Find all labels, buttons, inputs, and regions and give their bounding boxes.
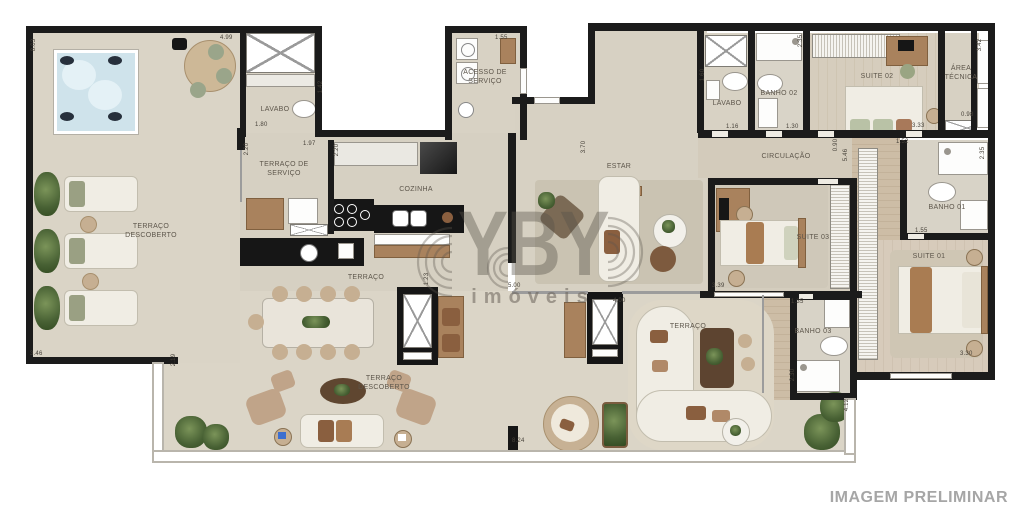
glass-divider bbox=[240, 150, 242, 202]
grill-shaft bbox=[403, 294, 432, 348]
wall bbox=[748, 31, 755, 133]
shaft-right bbox=[705, 35, 747, 67]
window bbox=[534, 97, 560, 104]
balcony-door bbox=[890, 373, 952, 379]
stool bbox=[738, 334, 752, 348]
toilet-icon bbox=[722, 72, 748, 91]
laptop-icon bbox=[898, 40, 914, 51]
bed-pillow bbox=[784, 226, 798, 260]
room-label-banho03: BANHO 03 bbox=[788, 327, 838, 336]
wall-tv-icon bbox=[172, 38, 187, 50]
dim-label: 4.99 bbox=[220, 35, 232, 41]
chair-icon bbox=[216, 68, 232, 84]
wall bbox=[588, 23, 595, 104]
fridge-tower bbox=[420, 142, 457, 174]
service-shelf bbox=[500, 38, 516, 64]
round-sink-icon bbox=[300, 244, 318, 262]
tablet-icon bbox=[278, 432, 286, 439]
dim-label: 2.35 bbox=[980, 147, 986, 159]
shower-head-icon bbox=[944, 148, 951, 155]
chair-icon bbox=[296, 344, 312, 360]
toilet-icon bbox=[928, 182, 956, 202]
burner-icon bbox=[360, 210, 370, 220]
lounger-pillow bbox=[69, 238, 85, 264]
wall bbox=[240, 33, 246, 137]
dim-label: 1.16 bbox=[726, 124, 738, 130]
door-opening bbox=[908, 234, 924, 239]
chair-icon bbox=[272, 344, 288, 360]
room-label-suite03: SUITE 03 bbox=[786, 233, 840, 242]
disclaimer-text: IMAGEM PRELIMINAR bbox=[830, 489, 1008, 507]
burner-icon bbox=[347, 217, 357, 227]
window bbox=[714, 292, 784, 297]
dim-label: 3.30 bbox=[960, 351, 972, 357]
plant bbox=[706, 348, 723, 365]
dim-label: 0.90 bbox=[833, 139, 839, 151]
dim-label: 5.46 bbox=[843, 149, 849, 161]
fireplace-cabinet bbox=[564, 302, 586, 358]
fireplace-slot bbox=[592, 349, 618, 357]
plant bbox=[730, 425, 741, 436]
wall bbox=[512, 97, 534, 104]
nightstand bbox=[966, 249, 983, 266]
room-label-cozinha: COZINHA bbox=[390, 185, 442, 194]
dim-label: 8.03 bbox=[31, 39, 37, 51]
plant bbox=[662, 220, 675, 233]
paper-icon bbox=[398, 434, 406, 441]
dim-label: 1.55 bbox=[915, 228, 927, 234]
bed-pillow bbox=[962, 272, 982, 328]
chair-icon bbox=[190, 82, 206, 98]
sofa-pillow bbox=[336, 420, 352, 442]
dim-label: 3.39 bbox=[712, 283, 724, 289]
service-sink bbox=[338, 243, 354, 259]
wall bbox=[988, 23, 995, 380]
dim-label: 3.70 bbox=[581, 141, 587, 153]
plant bbox=[34, 286, 60, 330]
dim-label: 1.30 bbox=[786, 124, 798, 130]
burner-icon bbox=[347, 204, 357, 214]
dim-label: 1.42 bbox=[318, 81, 324, 93]
headboard bbox=[981, 266, 988, 334]
watermark-subtitle: imóveis bbox=[438, 286, 628, 309]
terrace-parapet bbox=[152, 450, 856, 463]
wall bbox=[26, 26, 33, 364]
shaft-service-small bbox=[290, 224, 328, 236]
dim-label: 0.98 bbox=[961, 112, 973, 118]
plant bbox=[203, 424, 229, 450]
shower-head-icon bbox=[800, 364, 807, 371]
monitor-icon bbox=[719, 198, 729, 220]
door-opening bbox=[712, 131, 728, 137]
wall bbox=[520, 26, 527, 68]
room-label-estar: ESTAR bbox=[598, 162, 640, 171]
lounger-pillow bbox=[69, 295, 85, 321]
chair-icon bbox=[320, 344, 336, 360]
room-label-banho02: BANHO 02 bbox=[754, 89, 804, 98]
chair-icon bbox=[272, 286, 288, 302]
island-decor bbox=[442, 212, 453, 223]
chair-icon bbox=[208, 44, 224, 60]
room-label-terraco-lounge: TERRAÇO bbox=[658, 322, 718, 331]
toilet-icon bbox=[820, 336, 848, 356]
watermark-brand: YBY bbox=[455, 198, 611, 290]
glass-divider bbox=[762, 295, 764, 393]
room-label-terraco-desc-inf: TERRAÇO DESCOBERTO bbox=[342, 374, 426, 392]
island-lower-top bbox=[374, 234, 450, 245]
hot-tub-jet bbox=[108, 56, 122, 65]
pouf bbox=[728, 270, 745, 287]
bench-cushion bbox=[442, 334, 460, 352]
plant bbox=[175, 416, 207, 448]
wall bbox=[445, 26, 527, 33]
table-centerpiece bbox=[302, 316, 330, 328]
wall bbox=[328, 140, 334, 234]
door-opening bbox=[906, 131, 922, 137]
planter-box bbox=[602, 402, 628, 448]
room-label-suite02: SUITE 02 bbox=[850, 72, 904, 81]
service-cabinet bbox=[246, 198, 284, 230]
window bbox=[520, 68, 527, 94]
dim-label: 2.20 bbox=[334, 144, 340, 156]
hot-tub-jet bbox=[60, 56, 74, 65]
wall bbox=[900, 140, 907, 240]
door-opening bbox=[766, 131, 782, 137]
sofa-pillow bbox=[652, 360, 668, 372]
hot-tub-jet bbox=[60, 112, 74, 121]
sliding-glass-door bbox=[622, 291, 700, 294]
room-label-acesso: ACESSO DE SERVIÇO bbox=[452, 68, 518, 86]
room-label-area-tecnica: ÁREA TÉCNICA bbox=[936, 64, 986, 82]
dim-label: 3.42 bbox=[977, 39, 983, 51]
kitchen-counter-top bbox=[334, 142, 418, 166]
sink-cabinet bbox=[824, 298, 850, 328]
chair-icon bbox=[344, 286, 360, 302]
bed-runner bbox=[746, 222, 764, 264]
wall bbox=[708, 178, 715, 298]
wall bbox=[790, 293, 797, 400]
room-label-suite01: SUITE 01 bbox=[902, 252, 956, 261]
side-table bbox=[82, 273, 99, 290]
dim-label: 1.35 bbox=[791, 299, 803, 305]
sink-icon bbox=[706, 80, 720, 100]
dim-label: 2.19 bbox=[171, 354, 177, 366]
floor-plan: LAVABO TERRAÇO DE SERVIÇO COZINHA ACESSO… bbox=[0, 0, 1024, 516]
burner-icon bbox=[334, 204, 344, 214]
room-label-banho01: BANHO 01 bbox=[922, 203, 972, 212]
wardrobe-suite01 bbox=[858, 148, 878, 360]
headboard bbox=[798, 218, 806, 268]
shaft-left bbox=[246, 33, 315, 73]
round-sink-icon bbox=[458, 102, 474, 118]
dim-label: 2.35 bbox=[798, 35, 804, 47]
stool bbox=[741, 357, 755, 371]
wall bbox=[445, 26, 452, 140]
island-sink-icon bbox=[410, 210, 427, 227]
chair-icon bbox=[344, 344, 360, 360]
room-label-terraco-desc-esq: TERRAÇO DESCOBERTO bbox=[114, 222, 188, 240]
dim-label: 1.52 bbox=[896, 139, 908, 145]
wall bbox=[850, 178, 857, 400]
washer-drum-icon bbox=[461, 43, 475, 57]
wall bbox=[315, 130, 452, 137]
dim-label: 1.55 bbox=[495, 35, 507, 41]
wall bbox=[26, 26, 322, 33]
dim-label: 1.80 bbox=[255, 122, 267, 128]
lounger-pillow bbox=[69, 181, 85, 207]
dim-label: 3.46 bbox=[30, 351, 42, 357]
bed-runner bbox=[910, 267, 932, 333]
room-label-terraco-servico: TERRAÇO DE SERVIÇO bbox=[248, 160, 320, 178]
side-table bbox=[80, 216, 97, 233]
burner-icon bbox=[334, 217, 344, 227]
room-label-lavabo-esq: LAVABO bbox=[250, 105, 300, 114]
washer-icon bbox=[288, 198, 318, 224]
wall bbox=[790, 393, 852, 400]
chair-icon bbox=[296, 286, 312, 302]
dim-label: 1.60 bbox=[700, 69, 706, 81]
sofa-pillow bbox=[650, 330, 668, 343]
sofa-pillow bbox=[686, 406, 706, 420]
hot-tub-jet bbox=[108, 112, 122, 121]
island-lower-cabinet bbox=[374, 245, 450, 258]
dim-label: 1.23 bbox=[424, 273, 430, 285]
chair-icon bbox=[320, 286, 336, 302]
bench-cushion bbox=[442, 308, 460, 326]
island-sink-icon bbox=[392, 210, 409, 227]
terrace-parapet bbox=[152, 362, 164, 454]
dim-label: 4.12 bbox=[844, 399, 850, 411]
sink-cabinet bbox=[758, 98, 778, 128]
dim-label: 1.97 bbox=[303, 141, 315, 147]
wall bbox=[588, 23, 995, 31]
chair-icon bbox=[248, 314, 264, 330]
door-opening bbox=[818, 179, 838, 184]
ottoman bbox=[650, 246, 676, 272]
sink-counter bbox=[246, 74, 315, 87]
room-label-lavabo-dir: LAVABO bbox=[706, 99, 748, 108]
plant bbox=[34, 229, 60, 273]
wall bbox=[698, 130, 995, 138]
dim-label: 3.33 bbox=[912, 123, 924, 129]
hot-tub-water bbox=[88, 80, 122, 110]
dim-label: 2.30 bbox=[790, 369, 796, 381]
sofa-pillow bbox=[318, 420, 334, 442]
door-opening bbox=[818, 131, 834, 137]
wall bbox=[697, 31, 704, 133]
grill-slot bbox=[403, 352, 432, 360]
dim-label: 8.24 bbox=[512, 438, 524, 444]
room-label-terraco-jantar: TERRAÇO bbox=[340, 273, 392, 282]
dim-label: 2.20 bbox=[244, 143, 250, 155]
plant bbox=[34, 172, 60, 216]
room-label-circulacao: CIRCULAÇÃO bbox=[750, 152, 822, 161]
